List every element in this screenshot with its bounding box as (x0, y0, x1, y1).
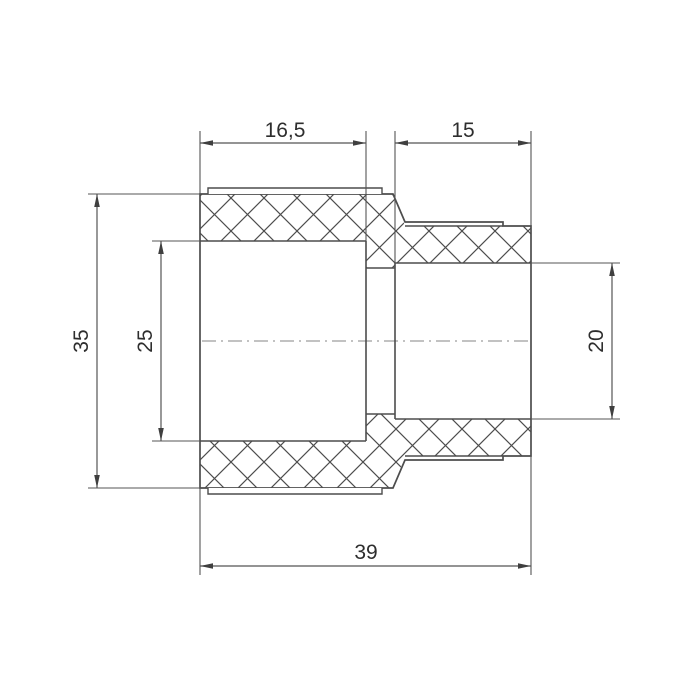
arrowhead-top (609, 263, 615, 276)
ext-inner-diameter-left (152, 241, 200, 441)
dim-label-outer-diameter-left: 35 (70, 329, 93, 352)
arrowhead-right (518, 140, 531, 146)
dimension-socket-right-length: 15 (395, 119, 531, 146)
arrowhead-top (94, 194, 100, 207)
dimension-outer-diameter-left: 35 (70, 194, 100, 488)
arrowhead-right (353, 140, 366, 146)
arrowhead-bottom (158, 428, 164, 441)
arrowhead-bottom (94, 475, 100, 488)
dimension-inner-diameter-right: 20 (585, 263, 615, 419)
drawing-canvas: 16,5 15 35 25 20 (0, 0, 700, 700)
arrowhead-top (158, 241, 164, 254)
dim-label-socket-right-length: 15 (451, 119, 474, 142)
dimension-inner-diameter-left: 25 (134, 241, 164, 441)
dim-label-total-length: 39 (354, 541, 377, 564)
dimension-socket-left-length: 16,5 (200, 119, 366, 146)
dim-label-inner-diameter-left: 25 (134, 329, 157, 352)
arrowhead-bottom (609, 406, 615, 419)
dim-label-inner-diameter-right: 20 (585, 329, 608, 352)
dim-label-socket-left-length: 16,5 (265, 119, 306, 142)
arrowhead-left (200, 140, 213, 146)
dimension-total-length: 39 (200, 541, 531, 569)
large-socket-rim-top (208, 188, 382, 194)
large-socket-rim-bottom (208, 488, 382, 494)
arrowhead-left (200, 563, 213, 569)
technical-drawing: 16,5 15 35 25 20 (0, 0, 700, 700)
arrowhead-left (395, 140, 408, 146)
arrowhead-right (518, 563, 531, 569)
